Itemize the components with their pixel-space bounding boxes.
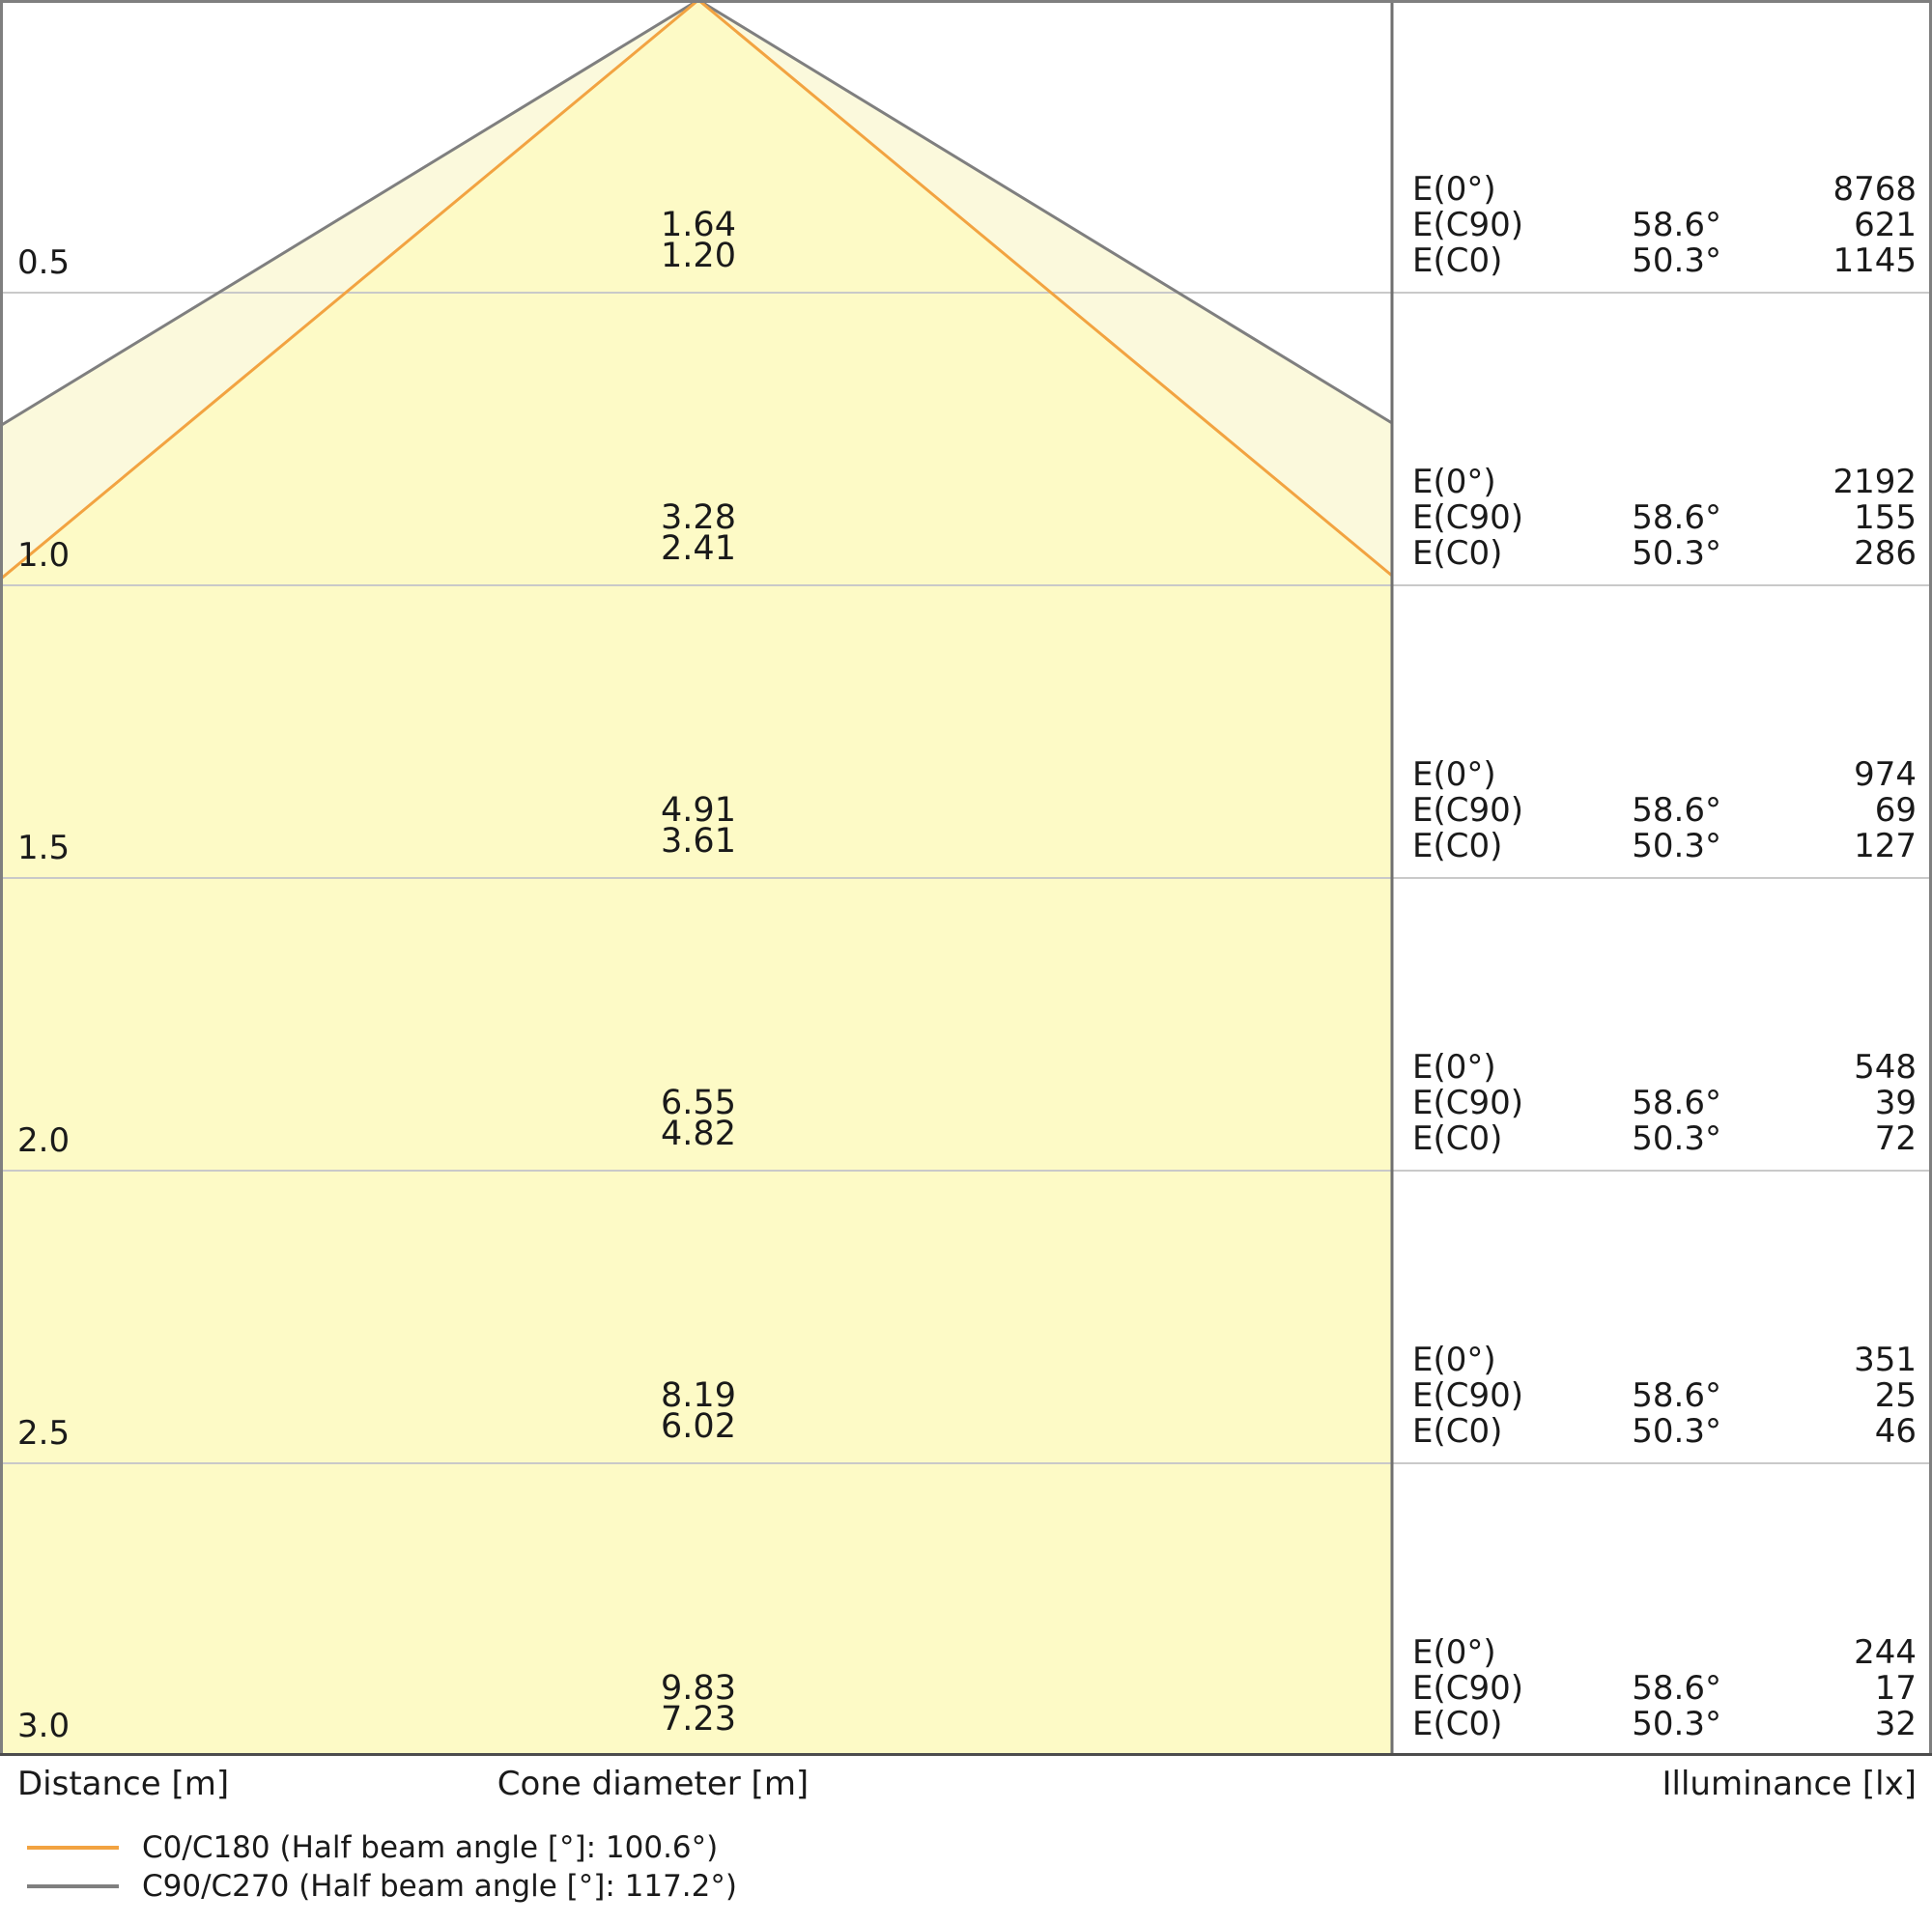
illuminance-line: E(0°) 548 [1412,1050,1917,1086]
illuminance-value: 17 [1721,1671,1917,1707]
cone-diameter-c0-value: 7.23 [554,1704,843,1735]
illuminance-label: E(C0) [1412,829,1577,864]
illuminance-value: 2192 [1721,465,1917,500]
illuminance-line: E(C90) 58.6° 621 [1412,208,1917,243]
cone-diameter-c0-value: 1.20 [554,240,843,271]
cone-diameter-labels: 1.64 1.20 [554,210,843,271]
beam-angle-value: 58.6° [1577,793,1721,829]
illuminance-label: E(0°) [1412,757,1577,793]
distance-tick-label: 0.5 [17,240,70,285]
beam-angle-value [1577,1343,1721,1378]
illuminance-label: E(0°) [1412,1635,1577,1671]
illuminance-line: E(C0) 50.3° 127 [1412,829,1917,864]
illuminance-block: E(0°) 974 E(C90) 58.6° 69 E(C0) 50.3° 12… [1412,757,1917,864]
illuminance-line: E(C90) 58.6° 39 [1412,1086,1917,1121]
cone-diameter-axis-label: Cone diameter [m] [363,1762,943,1806]
distance-tick-label: 3.0 [17,1704,70,1748]
illuminance-label: E(C90) [1412,793,1577,829]
distance-tick-label: 1.5 [17,826,70,870]
illuminance-value: 548 [1721,1050,1917,1086]
illuminance-value: 39 [1721,1086,1917,1121]
illuminance-label: E(C0) [1412,243,1577,279]
illuminance-line: E(C90) 58.6° 25 [1412,1378,1917,1414]
illuminance-block: E(0°) 351 E(C90) 58.6° 25 E(C0) 50.3° 46 [1412,1343,1917,1450]
illuminance-label: E(C0) [1412,1707,1577,1742]
illuminance-block: E(0°) 244 E(C90) 58.6° 17 E(C0) 50.3° 32 [1412,1635,1917,1742]
illuminance-value: 72 [1721,1121,1917,1157]
illuminance-value: 286 [1721,536,1917,572]
cone-diameter-labels: 3.28 2.41 [554,502,843,564]
illuminance-value: 46 [1721,1414,1917,1450]
illuminance-label: E(C90) [1412,1671,1577,1707]
illuminance-label: E(C0) [1412,1121,1577,1157]
illuminance-value: 32 [1721,1707,1917,1742]
illuminance-block: E(0°) 8768 E(C90) 58.6° 621 E(C0) 50.3° … [1412,172,1917,279]
illuminance-line: E(C0) 50.3° 286 [1412,536,1917,572]
illuminance-value: 244 [1721,1635,1917,1671]
cone-diameter-c0-value: 6.02 [554,1411,843,1442]
legend-item-c90-c270: C90/C270 (Half beam angle [°]: 117.2°) [27,1868,737,1905]
illuminance-line: E(C90) 58.6° 155 [1412,500,1917,536]
beam-angle-value: 58.6° [1577,1671,1721,1707]
beam-angle-value: 58.6° [1577,1378,1721,1414]
distance-tick-label: 2.0 [17,1118,70,1163]
illuminance-label: E(0°) [1412,1343,1577,1378]
beam-angle-value: 50.3° [1577,536,1721,572]
illuminance-value: 69 [1721,793,1917,829]
cone-diameter-c0-value: 4.82 [554,1118,843,1149]
legend-line-swatch-c90-icon [27,1884,119,1888]
illuminance-block: E(0°) 2192 E(C90) 58.6° 155 E(C0) 50.3° … [1412,465,1917,572]
distance-axis-label: Distance [m] [17,1762,229,1806]
illuminance-value: 621 [1721,208,1917,243]
beam-angle-value [1577,172,1721,208]
illuminance-label: E(0°) [1412,172,1577,208]
illuminance-label: E(0°) [1412,1050,1577,1086]
beam-angle-value: 58.6° [1577,1086,1721,1121]
illuminance-label: E(C0) [1412,1414,1577,1450]
light-cone-diagram: 0.5 1.64 1.20 E(0°) 8768 E(C90) 58.6° 62… [0,0,1932,1924]
illuminance-line: E(C0) 50.3° 72 [1412,1121,1917,1157]
illuminance-line: E(0°) 351 [1412,1343,1917,1378]
beam-angle-value: 50.3° [1577,1414,1721,1450]
illuminance-value: 974 [1721,757,1917,793]
illuminance-label: E(C90) [1412,500,1577,536]
cone-diameter-c0-value: 2.41 [554,533,843,564]
illuminance-value: 8768 [1721,172,1917,208]
illuminance-block: E(0°) 548 E(C90) 58.6° 39 E(C0) 50.3° 72 [1412,1050,1917,1157]
beam-angle-value [1577,465,1721,500]
illuminance-line: E(C0) 50.3° 1145 [1412,243,1917,279]
illuminance-line: E(C0) 50.3° 32 [1412,1707,1917,1742]
legend-label: C90/C270 (Half beam angle [°]: 117.2°) [142,1869,737,1904]
illuminance-line: E(0°) 974 [1412,757,1917,793]
illuminance-line: E(0°) 8768 [1412,172,1917,208]
beam-angle-value: 50.3° [1577,829,1721,864]
cone-diameter-labels: 8.19 6.02 [554,1380,843,1442]
illuminance-line: E(0°) 244 [1412,1635,1917,1671]
illuminance-label: E(C90) [1412,1378,1577,1414]
beam-angle-value: 50.3° [1577,1707,1721,1742]
beam-angle-value: 58.6° [1577,500,1721,536]
illuminance-value: 25 [1721,1378,1917,1414]
beam-angle-value [1577,1635,1721,1671]
illuminance-value: 155 [1721,500,1917,536]
beam-angle-value: 50.3° [1577,243,1721,279]
illuminance-line: E(C90) 58.6° 17 [1412,1671,1917,1707]
illuminance-label: E(C90) [1412,1086,1577,1121]
distance-tick-label: 2.5 [17,1411,70,1456]
illuminance-value: 351 [1721,1343,1917,1378]
illuminance-label: E(C0) [1412,536,1577,572]
illuminance-line: E(C90) 58.6° 69 [1412,793,1917,829]
legend: C0/C180 (Half beam angle [°]: 100.6°) C9… [27,1829,737,1905]
legend-line-swatch-c0-icon [27,1846,119,1850]
beam-angle-value: 50.3° [1577,1121,1721,1157]
illuminance-label: E(C90) [1412,208,1577,243]
cone-diameter-labels: 9.83 7.23 [554,1673,843,1735]
illuminance-axis-label: Illuminance [lx] [1395,1762,1917,1806]
beam-angle-value [1577,1050,1721,1086]
beam-angle-value [1577,757,1721,793]
illuminance-value: 127 [1721,829,1917,864]
cone-diameter-labels: 4.91 3.61 [554,795,843,857]
cone-diameter-c0-value: 3.61 [554,826,843,857]
illuminance-label: E(0°) [1412,465,1577,500]
illuminance-line: E(0°) 2192 [1412,465,1917,500]
distance-tick-label: 1.0 [17,533,70,578]
cone-diameter-labels: 6.55 4.82 [554,1088,843,1149]
legend-item-c0-c180: C0/C180 (Half beam angle [°]: 100.6°) [27,1829,737,1866]
beam-angle-value: 58.6° [1577,208,1721,243]
illuminance-value: 1145 [1721,243,1917,279]
legend-label: C0/C180 (Half beam angle [°]: 100.6°) [142,1830,718,1865]
illuminance-line: E(C0) 50.3° 46 [1412,1414,1917,1450]
